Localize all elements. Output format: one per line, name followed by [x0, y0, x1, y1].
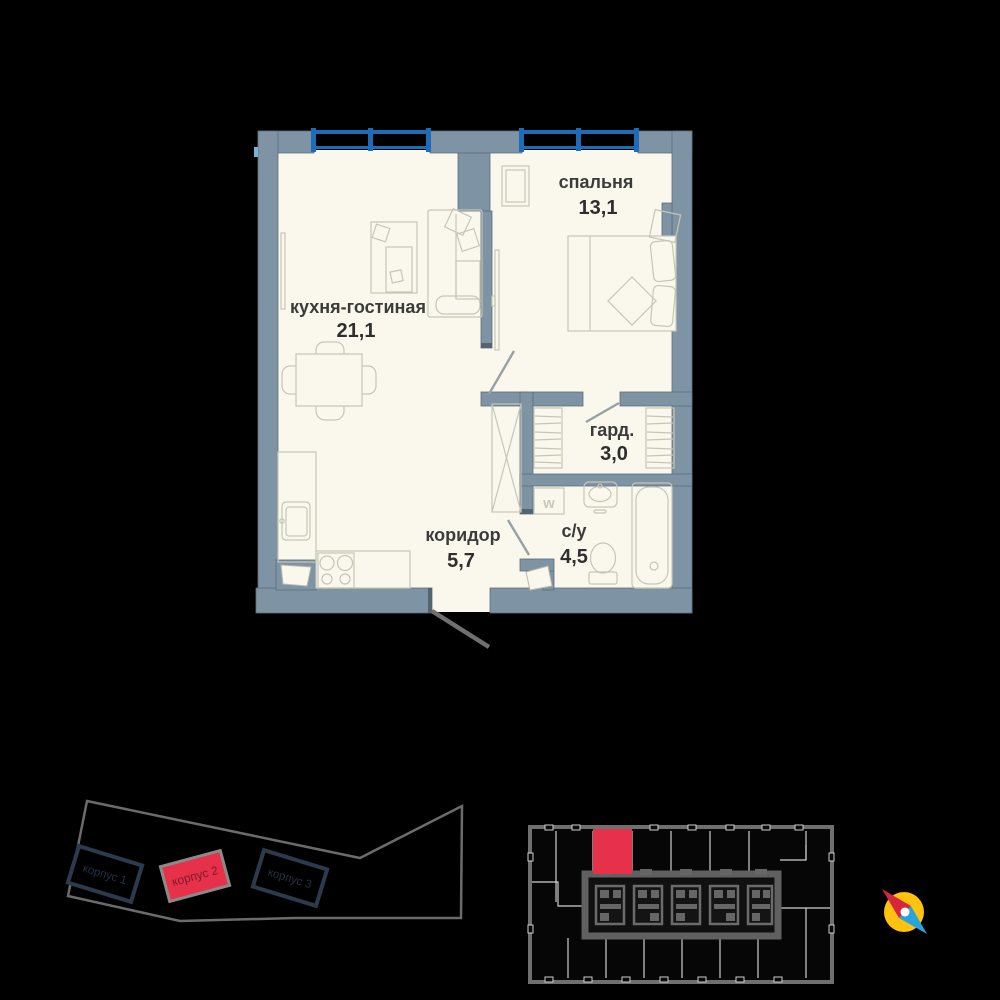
building-marker-korpus-2: корпус 2	[160, 851, 229, 902]
compass-icon	[882, 889, 927, 934]
washer-label: w	[542, 495, 555, 512]
room-area-kitchen: 21,1	[337, 320, 376, 342]
entry-cabinet-icon	[281, 565, 311, 586]
room-label-corridor: коридор	[425, 525, 500, 545]
room-label-bathroom: с/у	[561, 521, 586, 541]
room-area-bedroom: 13,1	[579, 197, 618, 219]
room-area-bathroom: 4,5	[560, 546, 588, 568]
building-marker-korpus-3: корпус 3	[253, 850, 327, 906]
selected-unit-marker	[593, 829, 632, 874]
entry-door-swing	[432, 611, 489, 647]
building-marker-korpus-1: корпус 1	[68, 846, 142, 902]
room-area-wardrobe: 3,0	[600, 443, 628, 465]
key-plan-core	[585, 869, 778, 936]
plan-canvas: w	[0, 0, 1000, 1000]
side-window-marker	[254, 147, 258, 157]
room-label-wardrobe: гард.	[590, 420, 634, 440]
room-label-bedroom: спальня	[559, 172, 634, 192]
room-area-corridor: 5,7	[447, 550, 475, 572]
apartment-floor-plan: w	[254, 128, 692, 647]
room-label-kitchen: кухня-гостиная	[290, 297, 426, 317]
compass-pivot	[901, 908, 910, 917]
site-plan: корпус 1 корпус 2 корпус 3	[68, 801, 462, 921]
key-plan	[528, 825, 834, 982]
